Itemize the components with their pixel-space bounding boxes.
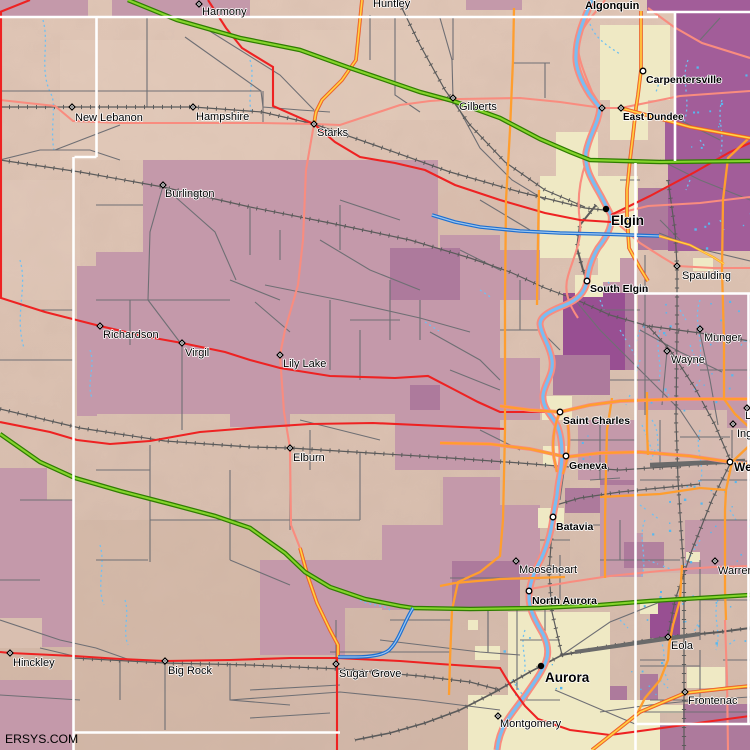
svg-text:Warrenv: Warrenv — [718, 565, 750, 577]
svg-text:Harmony: Harmony — [202, 6, 247, 18]
svg-text:Elburn: Elburn — [293, 452, 325, 464]
svg-text:Hampshire: Hampshire — [196, 111, 249, 123]
svg-text:Wes: Wes — [734, 460, 750, 474]
svg-text:Huntley: Huntley — [373, 0, 411, 10]
svg-text:Sugar Grove: Sugar Grove — [339, 668, 401, 680]
svg-text:Hinckley: Hinckley — [13, 657, 55, 669]
svg-text:Batavia: Batavia — [556, 521, 594, 533]
svg-text:Carpentersville: Carpentersville — [646, 74, 722, 86]
svg-text:Elgin: Elgin — [611, 213, 644, 228]
svg-text:Wayne: Wayne — [671, 354, 705, 366]
svg-text:Algonquin: Algonquin — [585, 0, 640, 12]
svg-text:Richardson: Richardson — [103, 329, 159, 341]
svg-text:South Elgin: South Elgin — [590, 283, 648, 295]
svg-text:North Aurora: North Aurora — [532, 595, 597, 607]
svg-text:Spaulding: Spaulding — [682, 270, 731, 282]
svg-text:Inga: Inga — [737, 428, 750, 440]
svg-text:Big Rock: Big Rock — [168, 665, 213, 677]
svg-text:Frontenac: Frontenac — [688, 695, 738, 707]
svg-text:New Lebanon: New Lebanon — [75, 112, 143, 124]
svg-text:Montgomery: Montgomery — [500, 718, 562, 730]
svg-text:Aurora: Aurora — [545, 670, 590, 685]
svg-text:Eola: Eola — [671, 640, 694, 652]
svg-text:Geneva: Geneva — [569, 460, 607, 472]
svg-text:Burlington: Burlington — [165, 188, 215, 200]
svg-text:ERSYS.COM: ERSYS.COM — [5, 732, 78, 746]
svg-text:L: L — [745, 410, 750, 422]
svg-text:Gilberts: Gilberts — [459, 101, 497, 113]
svg-text:Mooseheart: Mooseheart — [519, 564, 577, 576]
svg-text:East Dundee: East Dundee — [623, 112, 684, 123]
svg-text:Starks: Starks — [317, 127, 349, 139]
svg-text:Saint Charles: Saint Charles — [563, 415, 630, 427]
svg-text:Virgil: Virgil — [185, 347, 209, 359]
svg-text:Lily Lake: Lily Lake — [283, 358, 326, 370]
svg-text:Munger: Munger — [704, 332, 742, 344]
